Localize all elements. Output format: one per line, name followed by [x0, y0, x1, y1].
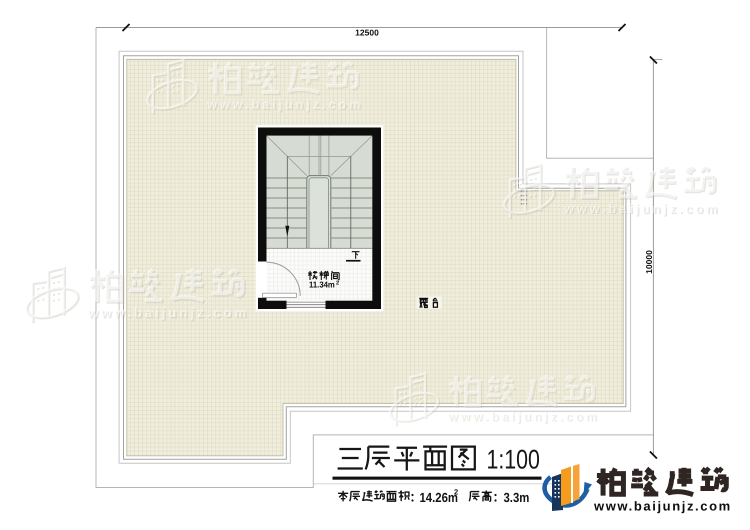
svg-text:14.26m: 14.26m — [420, 490, 458, 505]
svg-text:12500: 12500 — [355, 28, 379, 38]
svg-text:11.34m: 11.34m — [309, 279, 335, 289]
svg-text:3.3m: 3.3m — [504, 490, 530, 505]
svg-text:10000: 10000 — [644, 250, 654, 274]
svg-text:2: 2 — [454, 488, 458, 497]
svg-text:1:100: 1:100 — [487, 445, 540, 475]
svg-text:www.baijunjz.com: www.baijunjz.com — [593, 499, 732, 514]
svg-text:2: 2 — [336, 280, 339, 286]
